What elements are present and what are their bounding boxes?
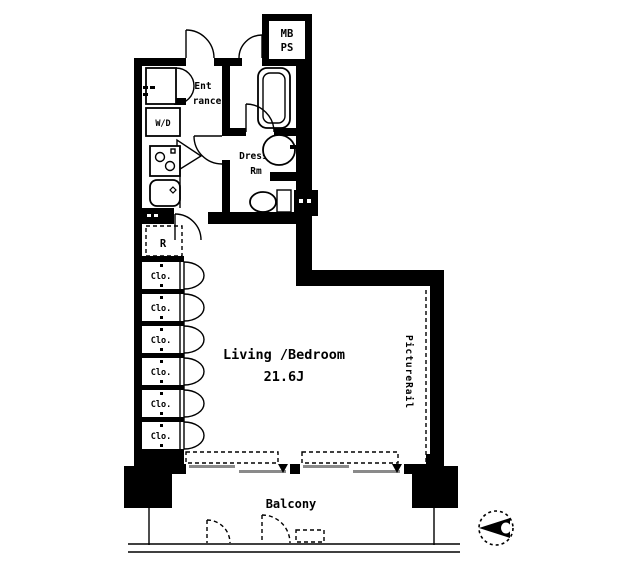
closet-door-arc bbox=[184, 358, 204, 372]
closet-divider bbox=[142, 417, 184, 422]
washbasin bbox=[263, 135, 295, 165]
pipe-shaft-dot bbox=[307, 199, 311, 203]
bath-room: Bath bbox=[246, 68, 290, 132]
entrance-area: Ent rance bbox=[193, 81, 222, 107]
closet-pivot-dot bbox=[160, 392, 163, 395]
hallway-door-arc bbox=[175, 214, 201, 240]
balcony-label: Balcony bbox=[266, 497, 317, 511]
kitchen-sink bbox=[150, 180, 180, 206]
closet-door-arc bbox=[184, 276, 204, 290]
closet-pivot-dot bbox=[160, 284, 163, 287]
cabinet-vent-mark bbox=[143, 93, 148, 96]
closet-door-arc bbox=[184, 262, 204, 276]
entry-door-symbol bbox=[186, 30, 214, 58]
closet-pivot-dot bbox=[160, 316, 163, 319]
closet-divider bbox=[142, 385, 184, 390]
dressing-label-2: Rm bbox=[250, 166, 262, 177]
closet-column: Clo. Clo. Clo. Clo. Clo. Clo. bbox=[142, 256, 204, 470]
washer-dryer-label: W/D bbox=[155, 119, 170, 129]
closet-pivot-dot bbox=[160, 380, 163, 383]
wall-stub-toilet bbox=[270, 172, 296, 181]
refrigerator-label: R bbox=[160, 238, 167, 250]
balcony-partition-arc bbox=[262, 515, 290, 543]
meter-box: MB PS bbox=[262, 14, 312, 66]
cabinet-vent-mark bbox=[150, 86, 155, 89]
picture-rail-label: PictureRail bbox=[403, 335, 414, 409]
meter-box-label-1: MB bbox=[281, 28, 294, 40]
closet-pivot-dot bbox=[160, 412, 163, 415]
wall-top-mid bbox=[214, 58, 242, 66]
pillar-left bbox=[124, 466, 172, 508]
closet-pivot-dot bbox=[160, 348, 163, 351]
wall-entrance-bath bbox=[222, 66, 230, 134]
closet-divider bbox=[142, 321, 184, 326]
wall-living-top-right bbox=[296, 270, 444, 286]
toilet-tank bbox=[277, 190, 291, 212]
window-pane bbox=[239, 470, 286, 473]
service-door-symbol bbox=[239, 35, 262, 58]
closet-pivot-dot bbox=[160, 424, 163, 427]
closet-door-arc bbox=[184, 404, 204, 418]
window-pane bbox=[303, 465, 349, 468]
curtain-box bbox=[302, 452, 398, 463]
pipe-shaft-dot bbox=[299, 199, 303, 203]
balcony-partition-arc bbox=[207, 520, 230, 543]
closet-door-arc bbox=[184, 390, 204, 404]
pillar-right-step bbox=[426, 454, 442, 468]
wall-bath-bottom-left bbox=[222, 128, 246, 136]
floorplan-drawing: MB PS W/D bbox=[0, 0, 640, 569]
window-pane bbox=[189, 465, 235, 468]
closet-pivot-dot bbox=[160, 296, 163, 299]
balcony-area: Balcony bbox=[128, 497, 460, 552]
closet-divider bbox=[142, 353, 184, 358]
closet-door-arc bbox=[184, 422, 204, 436]
closet-door-arc bbox=[184, 326, 204, 340]
cabinet-vent-mark bbox=[143, 86, 148, 89]
closet-divider bbox=[142, 256, 184, 262]
closet-label: Clo. bbox=[151, 272, 171, 282]
living-bedroom-size: 21.6J bbox=[264, 369, 305, 385]
closet-label: Clo. bbox=[151, 336, 171, 346]
closet-pivot-dot bbox=[160, 328, 163, 331]
living-bedroom-label: Living /Bedroom bbox=[223, 347, 345, 363]
counter-end-dot bbox=[147, 214, 151, 217]
closet-pivot-dot bbox=[160, 360, 163, 363]
floorplan-canvas: MB PS W/D bbox=[0, 0, 640, 569]
curtain-box bbox=[186, 452, 278, 463]
entrance-label-1: Ent bbox=[194, 81, 211, 92]
closet-label: Clo. bbox=[151, 368, 171, 378]
counter-end-dot bbox=[154, 214, 158, 217]
wall-window-seg-2 bbox=[290, 464, 300, 474]
entrance-label-2: rance bbox=[193, 96, 222, 107]
hallway-door-symbol bbox=[175, 214, 201, 240]
dressing-door-arc bbox=[194, 136, 222, 164]
window-pane bbox=[353, 470, 400, 473]
wall-hall-dressing bbox=[222, 160, 230, 214]
closet-divider bbox=[142, 289, 184, 294]
pillar-right bbox=[412, 466, 458, 508]
pipe-shaft-block bbox=[294, 190, 318, 216]
toilet-bowl bbox=[250, 192, 276, 212]
closet-pivot-dot bbox=[160, 264, 163, 267]
evacuation-hatch bbox=[296, 530, 324, 542]
living-bedroom: Living /Bedroom 21.6J PictureRail bbox=[186, 290, 426, 463]
entry-door-arc bbox=[186, 30, 214, 58]
compass-arrow-notch bbox=[501, 523, 511, 534]
washbasin-faucet bbox=[290, 145, 296, 149]
service-door-arc bbox=[239, 35, 262, 58]
closet-door-arc bbox=[184, 308, 204, 322]
closet-pivot-dot bbox=[160, 444, 163, 447]
closet-label: Clo. bbox=[151, 304, 171, 314]
closet-door-arc bbox=[184, 436, 204, 450]
wall-right-outer bbox=[430, 286, 444, 468]
meter-box-label-2: PS bbox=[281, 42, 294, 54]
closet-door-arc bbox=[184, 294, 204, 308]
wall-right-service bbox=[296, 66, 312, 272]
wall-left-outer bbox=[134, 58, 142, 470]
cabinet-door-arc-top bbox=[176, 68, 194, 86]
closet-door-arc bbox=[184, 372, 204, 386]
closet-door-arc bbox=[184, 340, 204, 354]
closet-label: Clo. bbox=[151, 400, 171, 410]
closet-label: Clo. bbox=[151, 432, 171, 442]
compass bbox=[479, 511, 513, 545]
